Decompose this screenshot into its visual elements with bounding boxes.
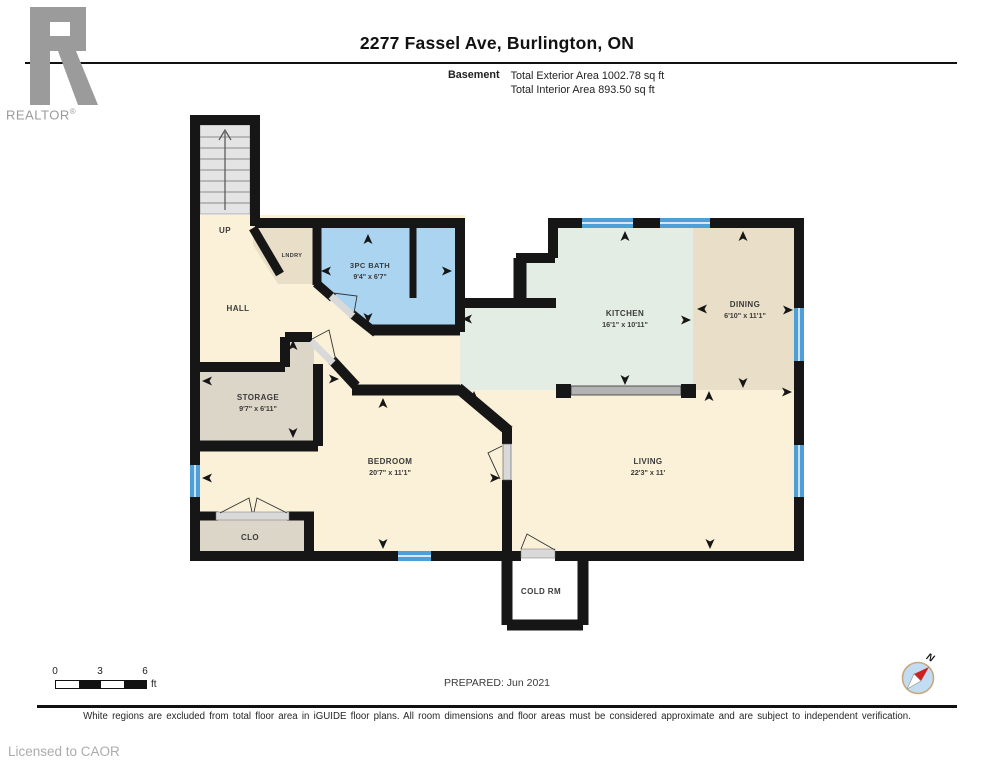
compass-icon: N <box>893 645 945 701</box>
room-label-storage: STORAGE <box>237 393 279 402</box>
window-kitchen-2 <box>660 218 710 228</box>
window-dining <box>794 308 804 361</box>
room-label-hall: HALL <box>227 304 250 313</box>
scale-tick-0: 0 <box>45 666 65 677</box>
window-kitchen-1 <box>582 218 633 228</box>
room-dims-storage: 9'7" x 6'11" <box>239 404 277 413</box>
room-dims-kitchen: 16'1" x 10'11" <box>602 320 648 329</box>
room-label-living: LIVING <box>633 457 662 466</box>
prepared-date: PREPARED: Jun 2021 <box>0 677 994 689</box>
room-dims-bath: 9'4" x 6'7" <box>353 274 386 281</box>
room-dims-living: 22'3" x 11' <box>631 468 666 477</box>
room-label-laundry: LNDRY <box>282 253 303 259</box>
scale-tick-3: 3 <box>90 666 110 677</box>
floor-plan-svg: UPHALLLNDRY3PC BATH9'4" x 6'7"KITCHEN16'… <box>0 0 994 768</box>
room-label-bedroom: BEDROOM <box>368 457 413 466</box>
room-label-kitchen: KITCHEN <box>606 309 644 318</box>
room-dims-dining: 6'10" x 11'1" <box>724 311 766 320</box>
staircase <box>200 125 250 214</box>
room-label-dining: DINING <box>730 300 760 309</box>
floor-plan-page: 2277 Fassel Ave, Burlington, ON Basement… <box>0 0 994 768</box>
kitchen-niche <box>526 262 558 302</box>
room-label-closet: CLO <box>241 533 259 542</box>
scale-tick-6: 6 <box>135 666 155 677</box>
room-floor-dining <box>693 228 799 390</box>
room-label-bath: 3PC BATH <box>350 261 390 270</box>
room-label-up: UP <box>219 226 231 235</box>
licensed-text: Licensed to CAOR <box>8 744 120 759</box>
window-bedroom-bottom <box>398 551 431 561</box>
compass-north-label: N <box>924 652 936 665</box>
disclaimer-text: White regions are excluded from total fl… <box>0 711 994 722</box>
room-dims-bedroom: 20'7" x 11'1" <box>369 468 411 477</box>
window-bedroom-left <box>190 465 200 497</box>
window-living <box>794 445 804 497</box>
room-label-coldroom: COLD RM <box>521 587 561 596</box>
room-floor-kitchen <box>460 228 693 390</box>
footer-rule <box>37 705 957 708</box>
